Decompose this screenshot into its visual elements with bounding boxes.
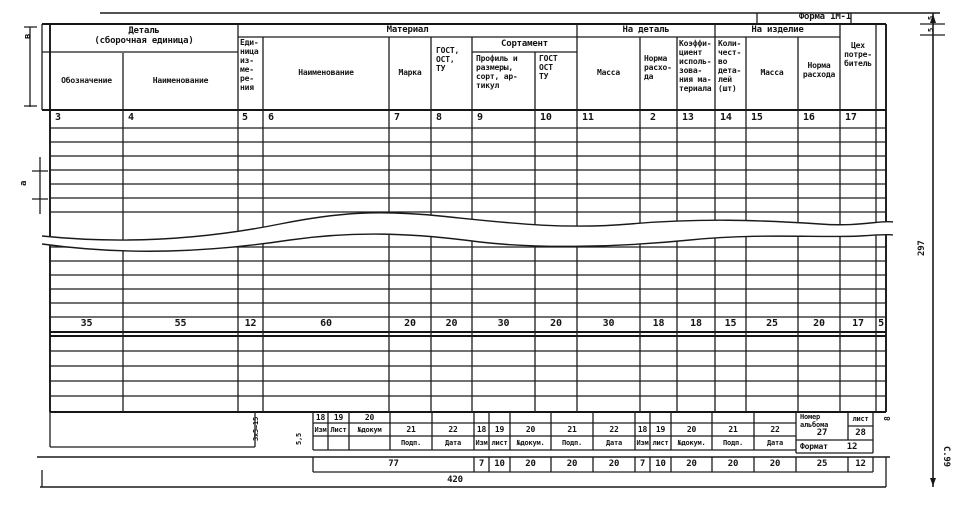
col-header-norm-item: Норма расхода (798, 62, 840, 80)
format-label: Формат (800, 443, 836, 452)
rev-col-number: 20 (349, 414, 390, 423)
col-number: 9 (477, 113, 483, 123)
page-reference: С.99 (938, 438, 950, 474)
dim-bottom: 10 (489, 460, 510, 469)
dim-bottom: 20 (712, 460, 754, 469)
col-header-shop: Цех потре- битель (840, 42, 876, 69)
dim-label-b: в (24, 25, 36, 47)
dim-col-width: 17 (840, 319, 876, 329)
rev-label-izm: Изм (313, 427, 328, 435)
col-number: 11 (582, 113, 594, 123)
col-header-norm-detail: Норма расхо- да (644, 55, 677, 82)
col-number: 7 (394, 113, 400, 123)
dim-col-width: 55 (123, 319, 238, 329)
dim-bottom: 20 (510, 460, 551, 469)
dim-col-width: 35 (50, 319, 123, 329)
col-number: 8 (436, 113, 442, 123)
rev-label-podp: Подп. (551, 440, 593, 448)
rev-col-number: 22 (432, 426, 474, 435)
format-value: 12 (838, 443, 866, 452)
album-number-value: 27 (796, 429, 848, 438)
rev-label-izm: Изм (474, 440, 489, 448)
dim-col-width: 20 (798, 319, 840, 329)
dim-label-a: а (20, 172, 32, 194)
dim-label-row-height: 5,5 (296, 424, 306, 454)
col-number: 2 (650, 113, 656, 123)
dim-page-height: 297 (918, 226, 931, 270)
dim-col-width: 15 (715, 319, 746, 329)
dim-bottom: 7 (635, 460, 650, 469)
rev-label-list: Лист (328, 427, 349, 435)
dim-bottom: 77 (313, 460, 474, 469)
col-number: 4 (128, 113, 134, 123)
rev-col-number: 19 (328, 414, 349, 423)
group-sortament: Сортамент (472, 40, 577, 49)
dim-col-width: 18 (640, 319, 677, 329)
rev-label-podp: Подп. (712, 440, 754, 448)
dim-col-width: 60 (263, 319, 389, 329)
col-header-coeff: Коэффи- циент исполь- зова- ния ма- тери… (679, 40, 715, 94)
dim-bottom: 20 (593, 460, 635, 469)
col-header-qty: Коли- чест- во дета- лей (шт) (718, 40, 746, 94)
rev-col-number: 19 (650, 426, 671, 435)
dim-bottom: 25 (796, 460, 848, 469)
dim-col-width: 12 (238, 319, 263, 329)
sheet-label: лист (848, 416, 873, 424)
group-per-item: На изделие (715, 26, 840, 35)
rev-label-dokum: №докум (349, 427, 390, 435)
wave-break (42, 213, 893, 252)
group-detail: Деталь (сборочная единица) (50, 26, 238, 46)
col-header-mass-item: Масса (746, 69, 798, 78)
rev-col-number: 22 (754, 426, 796, 435)
col-header-grade: Марка (389, 69, 431, 78)
col-header-gost: ГОСТ, ОСТ, ТУ (436, 47, 472, 74)
rev-label-data: Дата (754, 440, 796, 448)
dim-col-width: 30 (472, 319, 535, 329)
col-number: 3 (55, 113, 61, 123)
dim-col-width: 30 (577, 319, 640, 329)
rev-label-data: Дата (593, 440, 635, 448)
rev-label-podp: Подп. (390, 440, 432, 448)
rev-col-number: 20 (671, 426, 712, 435)
dim-label-eight: 8 (884, 412, 895, 426)
rev-label-dokum: №докум. (671, 440, 712, 448)
dim-bottom: 12 (848, 460, 873, 469)
dim-bottom: 10 (650, 460, 671, 469)
rev-col-number: 21 (390, 426, 432, 435)
dim-label-block-height: 3x5=15 (253, 410, 263, 448)
rev-label-izm: Изм (635, 440, 650, 448)
rev-col-number: 18 (474, 426, 489, 435)
dim-label-five-top: 5 (928, 12, 938, 23)
col-header-material-name: Наименование (263, 69, 389, 78)
rev-label-list: лист (489, 440, 510, 448)
dim-col-width: 20 (389, 319, 431, 329)
col-number: 14 (720, 113, 732, 123)
rev-label-list: лист (650, 440, 671, 448)
col-number: 13 (682, 113, 694, 123)
rev-col-number: 18 (635, 426, 650, 435)
col-header-gost-sortament: ГОСТ ОСТ ТУ (539, 55, 577, 82)
dim-col-width: 20 (431, 319, 472, 329)
col-number: 6 (268, 113, 274, 123)
col-number: 16 (803, 113, 815, 123)
group-per-detail: На деталь (577, 26, 715, 35)
dim-bottom: 20 (551, 460, 593, 469)
dim-label-five-bottom: 5 (928, 24, 938, 35)
rev-label-dokum: №докум. (510, 440, 551, 448)
dim-bottom: 7 (474, 460, 489, 469)
col-header-mass-detail: Масса (577, 69, 640, 78)
rev-col-number: 19 (489, 426, 510, 435)
rev-col-number: 20 (510, 426, 551, 435)
rev-col-number: 22 (593, 426, 635, 435)
rev-col-number: 18 (313, 414, 328, 423)
col-header-unit: Еди- ница из- ме- ре- ния (240, 39, 263, 93)
rev-col-number: 21 (551, 426, 593, 435)
dim-col-width: 5 (874, 319, 888, 329)
dim-bottom: 20 (671, 460, 712, 469)
group-material: Материал (238, 26, 577, 35)
col-number: 15 (751, 113, 763, 123)
form-caption: Форма 1М-1 (757, 13, 851, 22)
dim-bottom: 20 (754, 460, 796, 469)
col-number: 17 (845, 113, 857, 123)
dim-total-width: 420 (430, 476, 480, 485)
dim-col-width: 25 (746, 319, 798, 329)
col-header-profile: Профиль и размеры, сорт, ар- тикул (476, 55, 535, 91)
scanned-form-page: Форма 1М-1 Деталь (сборочная единица) Ма… (0, 0, 959, 518)
rev-col-number: 21 (712, 426, 754, 435)
dim-col-width: 20 (535, 319, 577, 329)
dim-col-width: 18 (677, 319, 715, 329)
col-header-designation: Обозначение (50, 77, 123, 86)
col-number: 5 (242, 113, 248, 123)
col-header-name: Наименование (123, 77, 238, 86)
col-number: 10 (540, 113, 552, 123)
sheet-value: 28 (848, 429, 873, 438)
rev-label-data: Дата (432, 440, 474, 448)
